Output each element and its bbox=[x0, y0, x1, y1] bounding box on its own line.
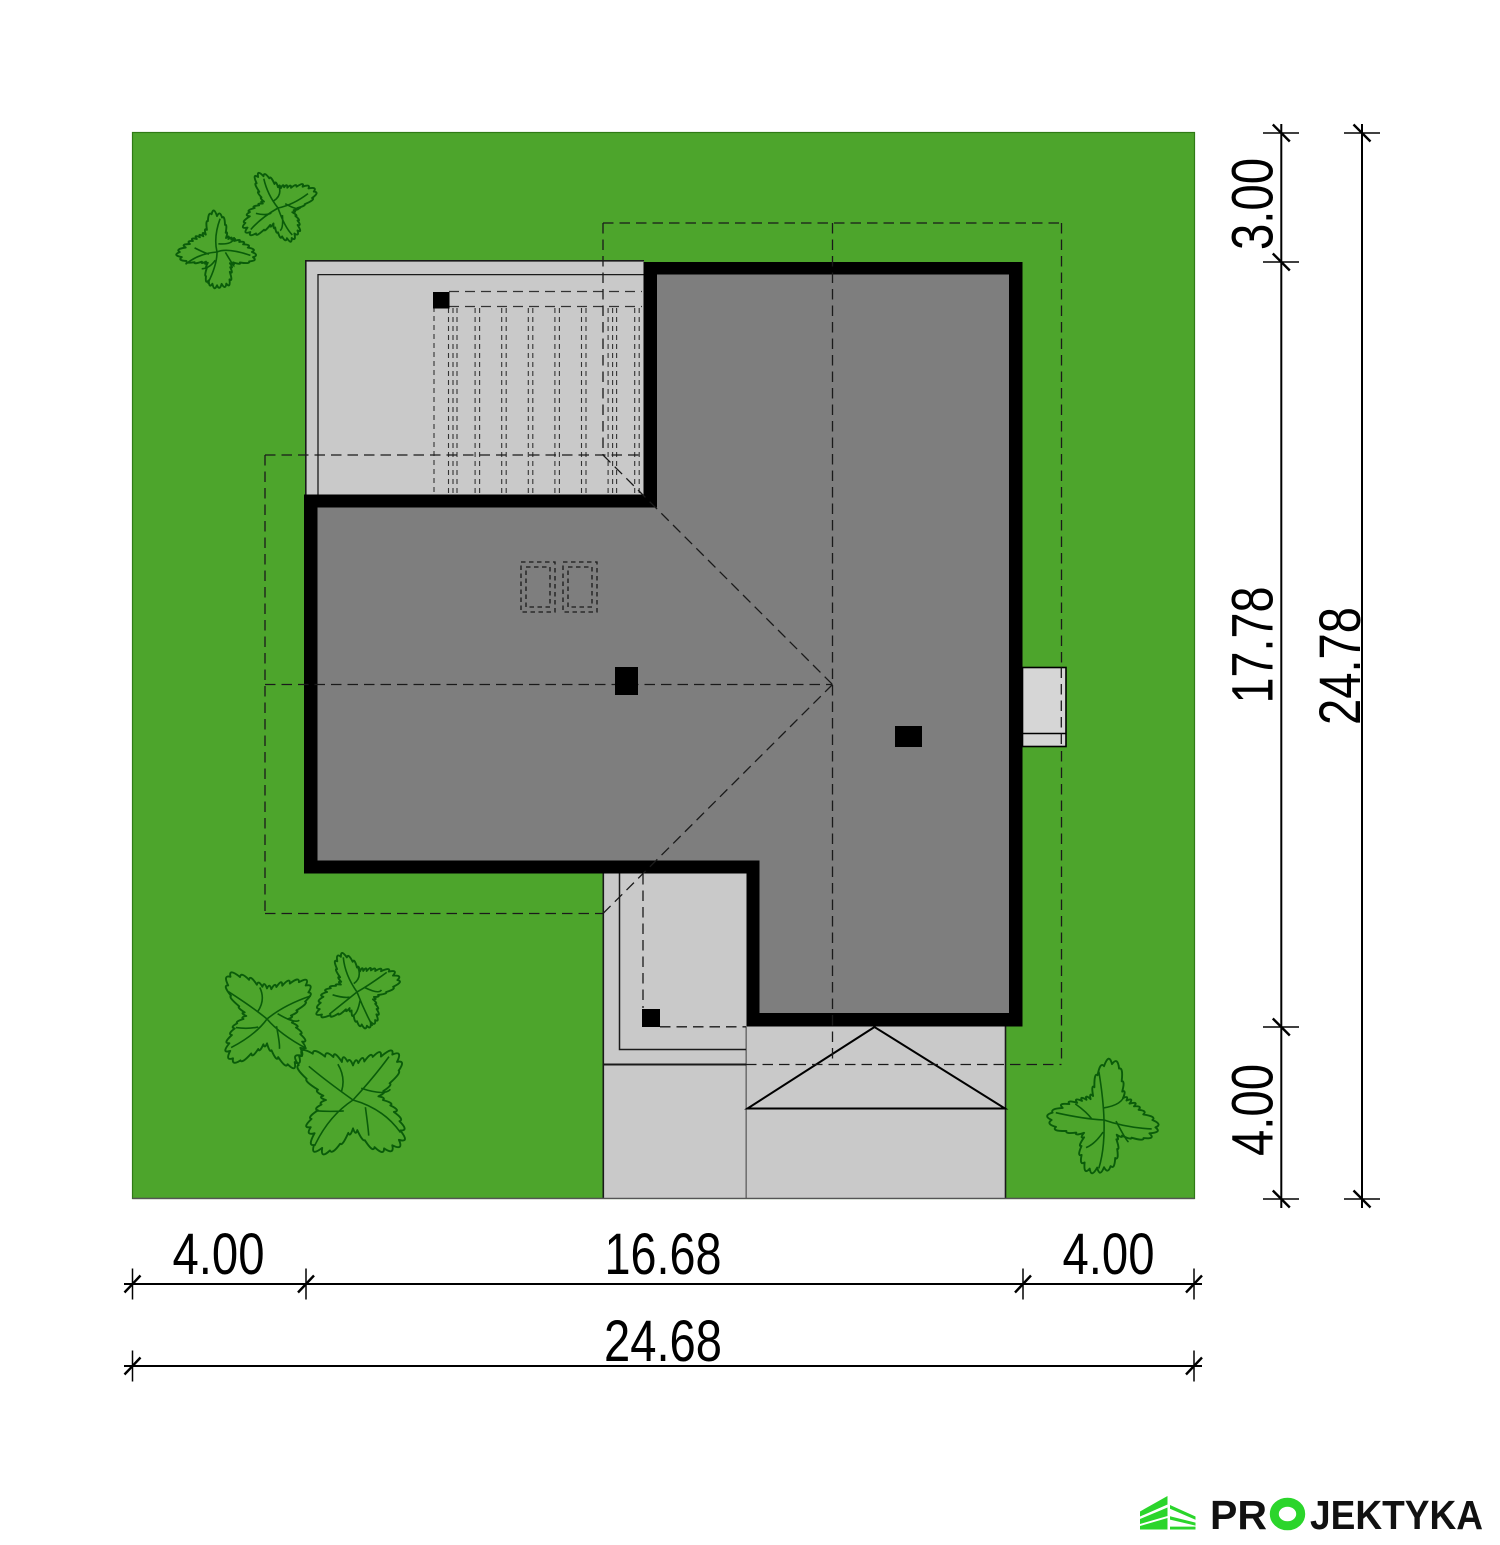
svg-text:24.78: 24.78 bbox=[1308, 607, 1373, 725]
svg-text:4.00: 4.00 bbox=[1063, 1222, 1155, 1287]
svg-text:4.00: 4.00 bbox=[173, 1222, 265, 1287]
svg-text:3.00: 3.00 bbox=[1221, 158, 1286, 250]
svg-text:JEKTYKA: JEKTYKA bbox=[1310, 1492, 1483, 1538]
svg-text:PR: PR bbox=[1210, 1492, 1267, 1538]
svg-text:4.00: 4.00 bbox=[1221, 1064, 1286, 1156]
svg-text:17.78: 17.78 bbox=[1221, 587, 1286, 704]
svg-text:24.68: 24.68 bbox=[604, 1309, 722, 1374]
svg-text:16.68: 16.68 bbox=[605, 1222, 722, 1287]
